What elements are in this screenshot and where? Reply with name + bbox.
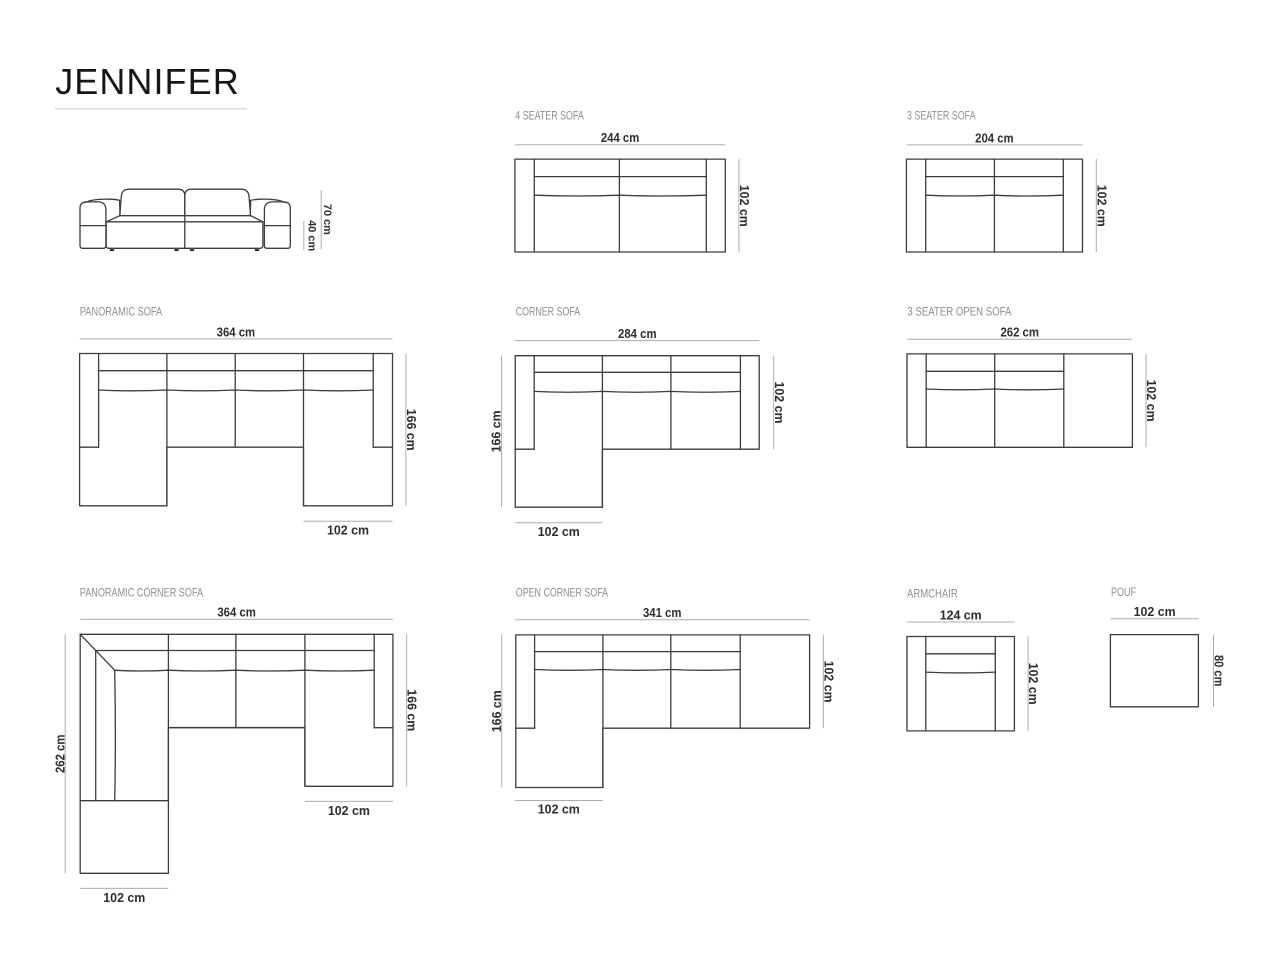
svg-text:102 cm: 102 cm xyxy=(737,185,752,227)
svg-text:166 cm: 166 cm xyxy=(489,690,504,732)
svg-text:102 cm: 102 cm xyxy=(103,890,145,905)
svg-text:341 cm: 341 cm xyxy=(643,605,682,620)
svg-text:166 cm: 166 cm xyxy=(404,409,419,451)
svg-text:102 cm: 102 cm xyxy=(822,661,837,703)
svg-text:204 cm: 204 cm xyxy=(975,130,1014,145)
svg-text:3 SEATER SOFA: 3 SEATER SOFA xyxy=(907,109,976,123)
svg-text:284 cm: 284 cm xyxy=(618,326,657,341)
svg-text:PANORAMIC SOFA: PANORAMIC SOFA xyxy=(80,305,163,319)
svg-text:166 cm: 166 cm xyxy=(405,689,420,731)
svg-text:364 cm: 364 cm xyxy=(217,324,256,339)
svg-text:102 cm: 102 cm xyxy=(328,803,370,818)
svg-text:JENNIFER: JENNIFER xyxy=(55,61,239,102)
svg-text:70 cm: 70 cm xyxy=(321,204,333,235)
svg-text:102 cm: 102 cm xyxy=(1026,663,1041,705)
svg-text:102 cm: 102 cm xyxy=(1134,604,1176,619)
svg-text:102 cm: 102 cm xyxy=(327,522,369,537)
svg-text:PANORAMIC CORNER SOFA: PANORAMIC CORNER SOFA xyxy=(80,586,204,600)
svg-text:4 SEATER SOFA: 4 SEATER SOFA xyxy=(515,109,584,123)
svg-text:80 cm: 80 cm xyxy=(1212,655,1227,687)
svg-text:CORNER SOFA: CORNER SOFA xyxy=(516,305,581,319)
svg-text:102 cm: 102 cm xyxy=(538,802,580,817)
svg-text:102 cm: 102 cm xyxy=(1144,380,1159,422)
svg-text:262 cm: 262 cm xyxy=(52,735,67,774)
svg-text:ARMCHAIR: ARMCHAIR xyxy=(907,586,958,600)
svg-text:3 SEATER OPEN SOFA: 3 SEATER OPEN SOFA xyxy=(907,305,1012,319)
svg-text:262 cm: 262 cm xyxy=(1000,325,1039,340)
svg-text:102 cm: 102 cm xyxy=(1094,185,1109,227)
svg-text:102 cm: 102 cm xyxy=(772,382,787,424)
svg-text:102 cm: 102 cm xyxy=(538,524,580,539)
svg-text:244 cm: 244 cm xyxy=(601,130,640,145)
svg-text:166 cm: 166 cm xyxy=(489,410,504,452)
svg-text:364 cm: 364 cm xyxy=(217,605,256,620)
svg-text:124 cm: 124 cm xyxy=(940,607,982,622)
svg-text:POUF: POUF xyxy=(1111,585,1136,599)
svg-text:OPEN CORNER SOFA: OPEN CORNER SOFA xyxy=(516,586,609,600)
svg-text:40 cm: 40 cm xyxy=(306,220,318,251)
